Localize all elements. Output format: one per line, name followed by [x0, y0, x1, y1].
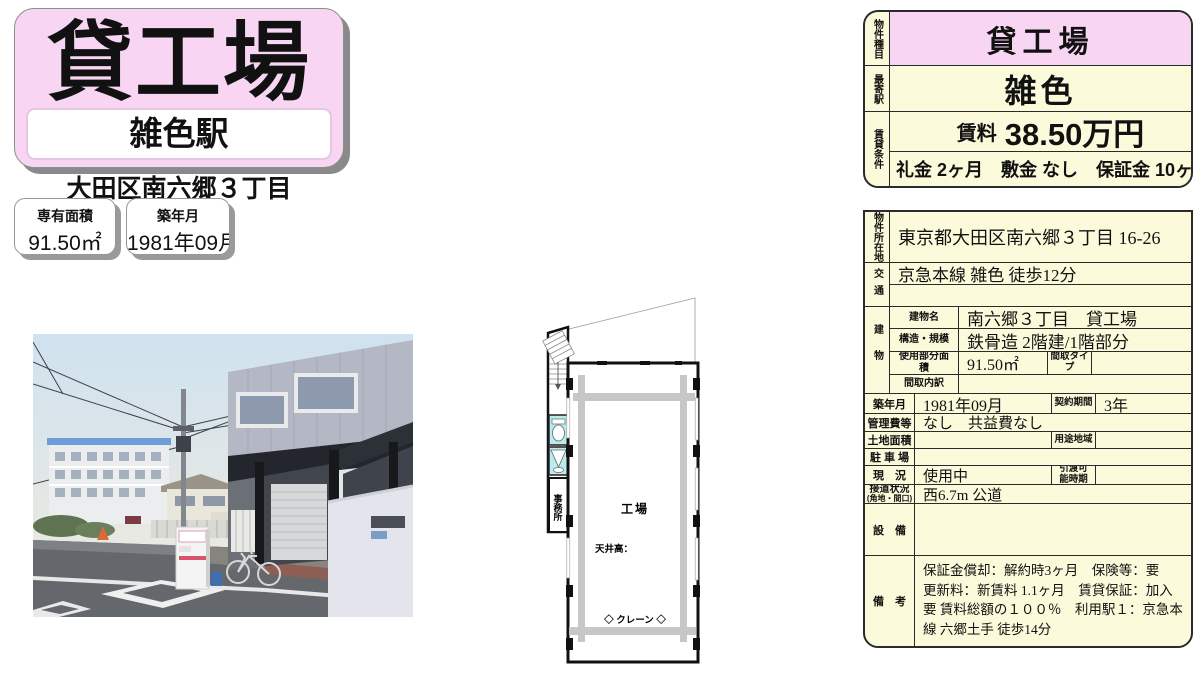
summary-table: 物件種目 貸工場 最寄駅 雑色 賃貸条件 賃料 38.50万円 礼金 2ヶ月 敷…: [863, 10, 1193, 188]
road-label-sub: (角地・間口): [867, 495, 912, 503]
row-parking: 駐 車 場: [865, 449, 1191, 466]
building-name-value: 南六郷３丁目 貸工場: [959, 307, 1191, 328]
built-label: 築年月: [127, 206, 229, 226]
station-name: 雑色駅: [130, 115, 229, 152]
structure-value: 鉄骨造 2階建/1階部分: [959, 329, 1191, 351]
row-mgmt: 管理費等 なし 共益費なし: [865, 414, 1191, 432]
row-building-name: 建物名 南六郷３丁目 貸工場: [890, 307, 1191, 329]
contract-value: 3年: [1096, 394, 1191, 413]
window: [238, 394, 286, 426]
structure-label: 構造・規模: [890, 329, 959, 351]
row-land: 土地面積 用途地域: [865, 432, 1191, 449]
background-apartment: [47, 438, 171, 524]
row-status: 現 況 使用中 引渡可能時期: [865, 466, 1191, 485]
location-label: 物件所在地: [865, 212, 890, 262]
status-label: 現 況: [865, 466, 915, 484]
remarks-value: 保証金償却：解約時3ヶ月 保険等：要 更新料：新賃料 1.1ヶ月 賃貸保証：加入…: [915, 556, 1191, 646]
land-label: 土地面積: [865, 432, 915, 448]
shutter-door: [271, 484, 327, 560]
row-equipment: 設 備: [865, 504, 1191, 556]
mailbox: [371, 516, 405, 528]
row-location: 物件所在地 東京都大田区南六郷３丁目 16-26: [865, 212, 1191, 263]
rent-line: 賃料 38.50万円: [890, 112, 1193, 152]
zone-label: 用途地域: [1051, 432, 1096, 448]
handover-value: [1096, 466, 1191, 484]
property-type-title: 貸工場: [15, 9, 343, 111]
window: [296, 375, 356, 411]
handover-label: 引渡可能時期: [1051, 466, 1096, 484]
summary-row-type: 物件種目 貸工場: [865, 12, 1191, 66]
station-value: 雑色: [890, 66, 1191, 111]
parking-label: 駐 車 場: [865, 449, 915, 465]
status-value: 使用中: [915, 466, 1051, 484]
remarks-label: 備 考: [865, 556, 915, 646]
site-outline: [565, 298, 695, 363]
stat-box-area: 専有面積 91.50㎡: [14, 198, 116, 255]
summary-row-terms: 賃貸条件 賃料 38.50万円 礼金 2ヶ月 敷金 なし 保証金 10ヶ月: [865, 112, 1191, 186]
road-value: 西6.7m 公道: [915, 485, 1191, 503]
row-layout-detail: 間取内訳: [890, 375, 1191, 393]
row-used-area: 使用部分面積 91.50㎡ 間取タイプ: [890, 352, 1191, 375]
layout-detail-label: 間取内訳: [890, 375, 959, 393]
access-line2: [890, 285, 1191, 306]
area-value: 91.50㎡: [15, 227, 115, 255]
used-area-label: 使用部分面積: [890, 352, 959, 374]
washroom: [549, 447, 568, 475]
equipment-label: 設 備: [865, 504, 915, 555]
details-table: 物件所在地 東京都大田区南六郷３丁目 16-26 交通 京急本線 雑色 徒歩12…: [863, 210, 1193, 648]
layout-type-value: [1092, 352, 1191, 374]
stat-box-built: 築年月 1981年09月: [126, 198, 230, 255]
built-value: 1981年09月: [127, 227, 229, 255]
used-area-value: 91.50㎡: [959, 352, 1047, 374]
front-wall: [328, 486, 413, 617]
rent-label: 賃料: [957, 117, 997, 146]
photo-scene: [33, 334, 413, 617]
toilet-icon: [553, 425, 565, 441]
building-name-label: 建物名: [890, 307, 959, 328]
row-structure: 構造・規模 鉄骨造 2階建/1階部分: [890, 329, 1191, 352]
terms-line: 礼金 2ヶ月 敷金 なし 保証金 10ヶ月: [890, 152, 1193, 186]
toilet-room: [549, 415, 568, 445]
layout-type-label: 間取タイプ: [1047, 352, 1092, 374]
equipment-value: [915, 504, 1191, 555]
rent-value: 38.50万円: [1005, 109, 1145, 154]
station-label: 最寄駅: [865, 66, 890, 111]
plan-office-label: 事務所: [548, 482, 568, 532]
built-year-value: 1981年09月: [915, 394, 1051, 413]
access-label: 交通: [865, 263, 890, 306]
mgmt-label: 管理費等: [865, 414, 915, 431]
plan-ceiling-label: 天井高：: [595, 541, 665, 555]
plan-room-label: 工場: [605, 500, 665, 517]
type-value: 貸工場: [890, 12, 1191, 65]
road-label: 接道状況 (角地・間口): [865, 485, 915, 503]
mgmt-value: なし 共益費なし: [915, 414, 1191, 431]
parking-value: [915, 449, 1191, 465]
access-line1: 京急本線 雑色 徒歩12分: [890, 263, 1191, 285]
row-road: 接道状況 (角地・間口) 西6.7m 公道: [865, 485, 1191, 504]
layout-detail-value: [959, 375, 1191, 393]
terms-label: 賃貸条件: [865, 112, 890, 186]
location-value: 東京都大田区南六郷３丁目 16-26: [890, 212, 1191, 262]
type-label: 物件種目: [865, 12, 890, 65]
row-access: 交通 京急本線 雑色 徒歩12分: [865, 263, 1191, 307]
area-label: 専有面積: [15, 206, 115, 226]
building-label: 建物: [865, 307, 890, 393]
zone-value: [1096, 432, 1191, 448]
plan-crane-label: ◇ クレーン ◇: [593, 612, 677, 626]
contract-label: 契約期間: [1051, 394, 1096, 413]
floor-plan: 事務所 工場 天井高： ◇ クレーン ◇: [535, 290, 715, 682]
row-built: 築年月 1981年09月 契約期間 3年: [865, 394, 1191, 414]
row-building: 建物 建物名 南六郷３丁目 貸工場 構造・規模 鉄骨造 2階建/1階部分 使用部…: [865, 307, 1191, 394]
row-remarks: 備 考 保証金償却：解約時3ヶ月 保険等：要 更新料：新賃料 1.1ヶ月 賃貸保…: [865, 556, 1191, 646]
title-card: 貸工場 雑色駅: [14, 8, 344, 168]
built-year-label: 築年月: [865, 394, 915, 413]
land-value: [915, 432, 1051, 448]
exterior-photo: [33, 334, 413, 617]
station-box: 雑色駅: [26, 108, 332, 160]
summary-row-station: 最寄駅 雑色: [865, 66, 1191, 112]
